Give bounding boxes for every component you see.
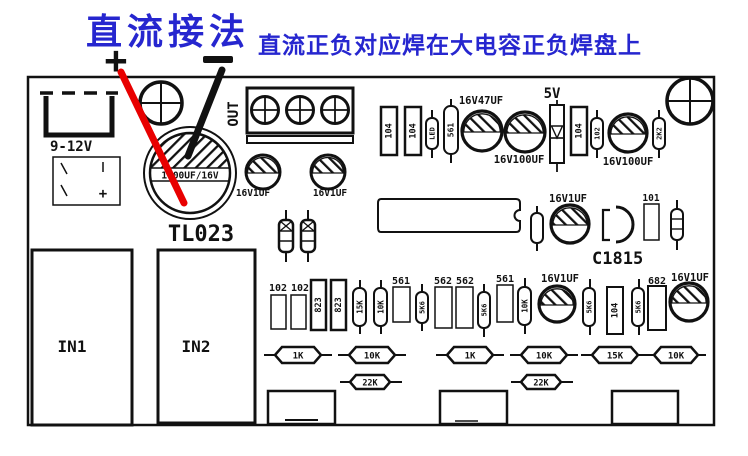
component-value: 10K — [377, 300, 386, 314]
component-value: 561 — [447, 123, 456, 138]
capacitor-label: 16V1UF — [236, 188, 271, 199]
in2-block: IN2 — [158, 250, 255, 423]
resistor-823-b: 823 — [331, 280, 346, 330]
component-value: 2K2 — [656, 127, 664, 140]
component-value: 15K — [356, 300, 365, 314]
capacitor-label: 16V1UF — [313, 188, 348, 199]
capacitor-label: 16V100UF — [494, 154, 545, 166]
component-value: 823 — [314, 297, 324, 312]
dc-jack-voltage-label: 9-12V — [50, 139, 93, 155]
component-value: 10K — [536, 352, 553, 362]
in1-label: IN1 — [58, 337, 87, 356]
component-value: 104 — [575, 123, 585, 138]
ceramic-cap-104-c: 104 — [571, 107, 587, 155]
in2-label: IN2 — [182, 337, 211, 356]
component-value: 102 — [594, 127, 602, 140]
component-value: 1K — [293, 352, 304, 362]
component-value: 102 — [269, 283, 287, 294]
capacitor-label: 16V1UF — [541, 273, 579, 285]
out-label: OUT — [226, 101, 242, 126]
screw-terminal-3-icon — [322, 97, 349, 124]
minus-terminal-mark — [203, 56, 233, 63]
mounting-hole-top-right-icon — [667, 78, 713, 124]
component-value: 104 — [385, 123, 395, 138]
component-value: 5K6 — [481, 304, 489, 317]
component-value: 562 — [456, 276, 474, 287]
screw-terminal-1-icon — [252, 97, 279, 124]
component-value: 10K — [364, 352, 381, 362]
component-value: 104 — [409, 123, 419, 138]
resistor-101: 101 — [642, 193, 659, 240]
component-value: 102 — [291, 283, 309, 294]
component-value: 5K6 — [586, 301, 594, 314]
zener-voltage-label: 5V — [544, 86, 561, 102]
bottom-connector-2 — [440, 391, 507, 424]
component-value: 561 — [496, 274, 514, 285]
capacitor-label: 16V47UF — [459, 95, 503, 107]
capacitor-label: 16V100UF — [603, 156, 654, 168]
resistor-561-b: 561 — [496, 274, 514, 322]
component-value: 10K — [668, 352, 685, 362]
capacitor-16v47uf: 16V47UF — [459, 95, 503, 151]
pcb-assembly-diagram: 直流接法 直流正负对应焊在大电容正负焊盘上 + 9-12V + 1000UF/1… — [0, 0, 748, 456]
diagram-canvas: 直流接法 直流正负对应焊在大电容正负焊盘上 + 9-12V + 1000UF/1… — [0, 0, 748, 456]
component-value: 5K6 — [419, 301, 427, 314]
capacitor-16v1uf-c: 16V1UF — [549, 193, 589, 243]
component-value: 561 — [392, 276, 410, 287]
capacitor-16v1uf-b: 16V1UF — [311, 155, 347, 199]
ceramic-cap-104-vertical: 104 — [607, 287, 623, 334]
board-name-label: TL023 — [168, 222, 234, 247]
capacitor-16v1uf-e: 16V1UF — [670, 272, 709, 321]
component-value: 5K6 — [635, 301, 643, 314]
component-value: 104 — [611, 303, 621, 318]
polarity-plus-label: + — [99, 186, 107, 202]
polarity-box: + — [53, 157, 120, 205]
resistor-561-a: 561 — [392, 276, 410, 322]
ic-footprint — [378, 199, 520, 232]
capacitor-16v1uf-d: 16V1UF — [539, 273, 579, 322]
resistor-682: 682 — [648, 276, 666, 330]
component-value: 15K — [607, 352, 624, 362]
component-value: 22K — [362, 379, 378, 389]
bottom-connector-3 — [612, 391, 678, 424]
component-value: 10K — [521, 299, 530, 313]
in1-block: IN1 — [32, 250, 132, 425]
component-value: 562 — [434, 276, 452, 287]
component-value: 101 — [642, 193, 659, 204]
capacitor-label: 16V1UF — [549, 193, 587, 205]
screw-terminal-2-icon — [287, 97, 314, 124]
component-value: 823 — [334, 297, 344, 312]
ceramic-cap-104-b: 104 — [405, 107, 421, 155]
component-value: 22K — [533, 379, 549, 389]
resistor-561-vertical: 561 — [444, 99, 458, 163]
resistor-823-a: 823 — [311, 280, 326, 330]
component-value: LED — [429, 127, 437, 140]
component-value: 1K — [465, 352, 476, 362]
ceramic-cap-104-a: 104 — [381, 107, 397, 155]
transistor-label: C1815 — [592, 249, 643, 269]
subtitle-text: 直流正负对应焊在大电容正负焊盘上 — [258, 32, 642, 59]
